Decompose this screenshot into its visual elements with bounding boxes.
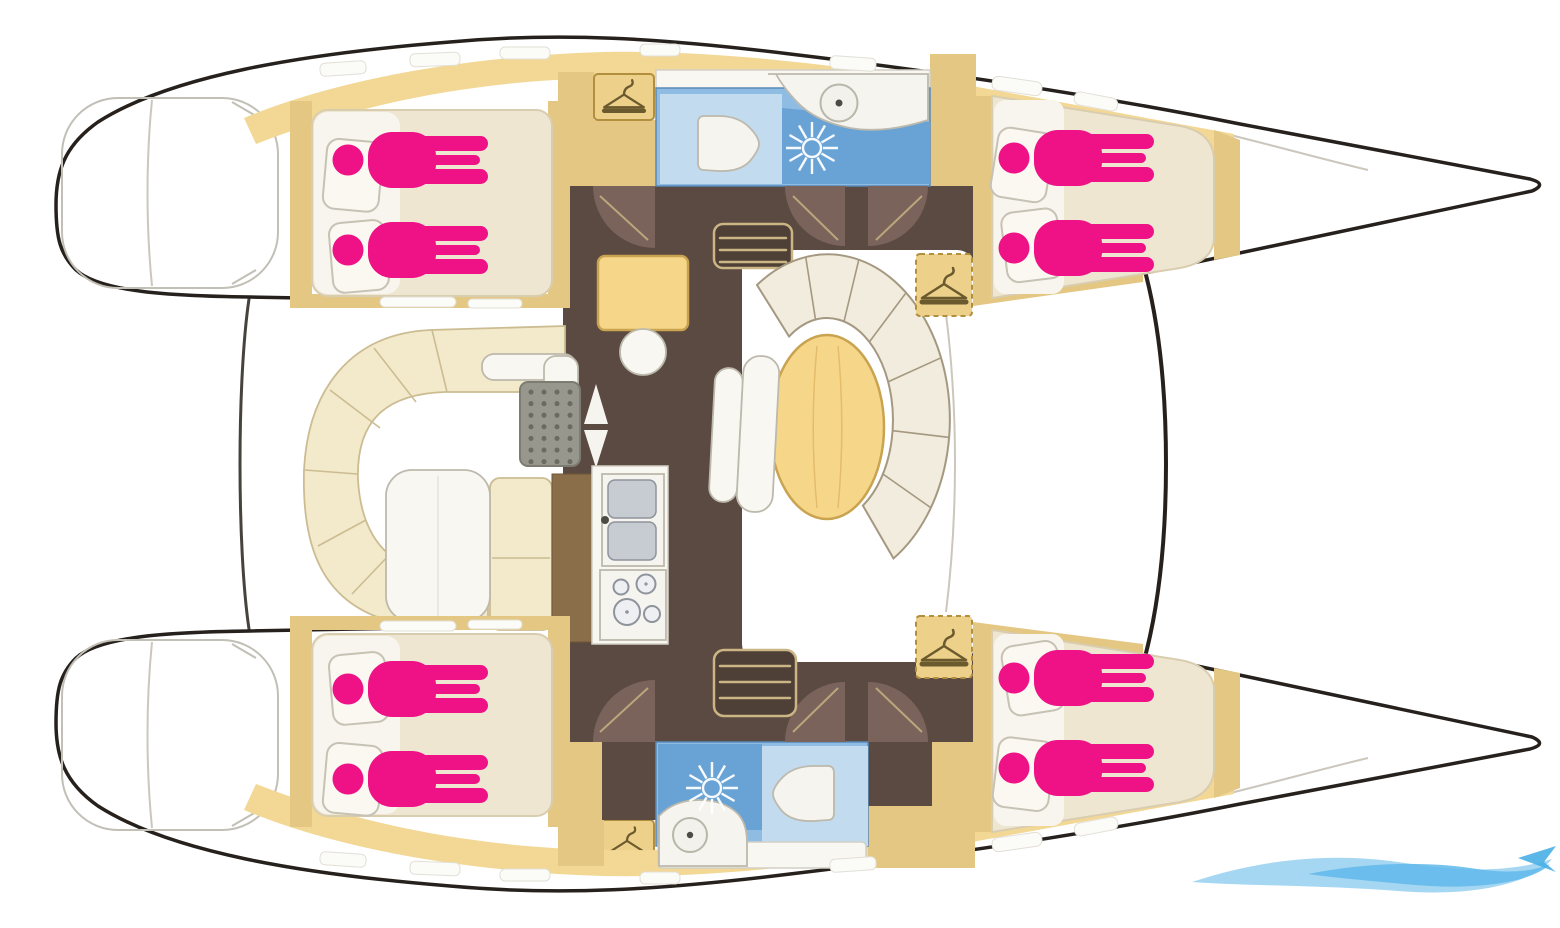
starboard-hull-interior [244, 616, 1240, 884]
cabin-port-aft [290, 101, 570, 308]
cockpit [304, 326, 608, 642]
starboard-cabinet [932, 742, 975, 808]
head-starboard [656, 742, 868, 868]
wardrobe [916, 616, 972, 678]
faucet-icon [601, 516, 609, 524]
galley [592, 466, 668, 644]
floor-plan-canvas [0, 0, 1560, 928]
port-hull-interior [244, 44, 1240, 308]
port-cabinet [558, 120, 656, 186]
dining-table [770, 335, 884, 519]
companionway-steps-starboard [714, 650, 796, 716]
sink-basin [608, 480, 656, 518]
companionway-steps-port [714, 224, 792, 268]
wardrobe [594, 74, 654, 120]
starboard-corridor-floor [868, 742, 934, 808]
bench-seat [736, 355, 780, 513]
burner-icon [644, 606, 660, 622]
head-port [656, 70, 930, 186]
watermark-wave [1192, 846, 1556, 892]
wardrobe [916, 254, 972, 316]
forward-crossbeam [1146, 275, 1166, 653]
cockpit-side-bench [490, 478, 552, 630]
starboard-cabinet [868, 806, 975, 868]
stool [620, 329, 666, 375]
starboard-corridor-floor [602, 742, 656, 820]
port-cabinet-fwd [930, 54, 976, 186]
deck-grate [520, 382, 580, 466]
chart-table [598, 256, 688, 330]
cabin-starboard-aft [290, 616, 570, 827]
sink-basin [608, 522, 656, 560]
burner-icon [614, 580, 629, 595]
floor-plan-image [0, 0, 1560, 928]
aft-deck-edge [240, 299, 249, 629]
